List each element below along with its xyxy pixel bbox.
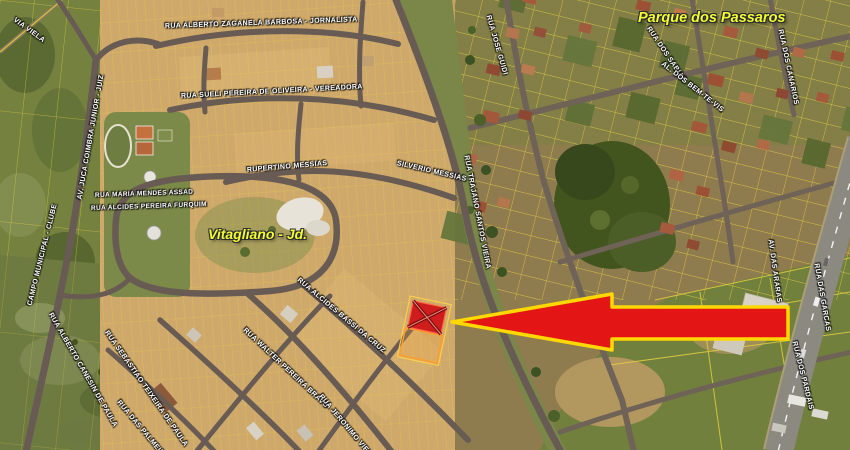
neighborhood-layer [441, 0, 850, 450]
map-viewport[interactable]: Vitagliano - Jd. Parque dos Passaros VIA… [0, 0, 850, 450]
satellite-basemap [0, 0, 850, 450]
